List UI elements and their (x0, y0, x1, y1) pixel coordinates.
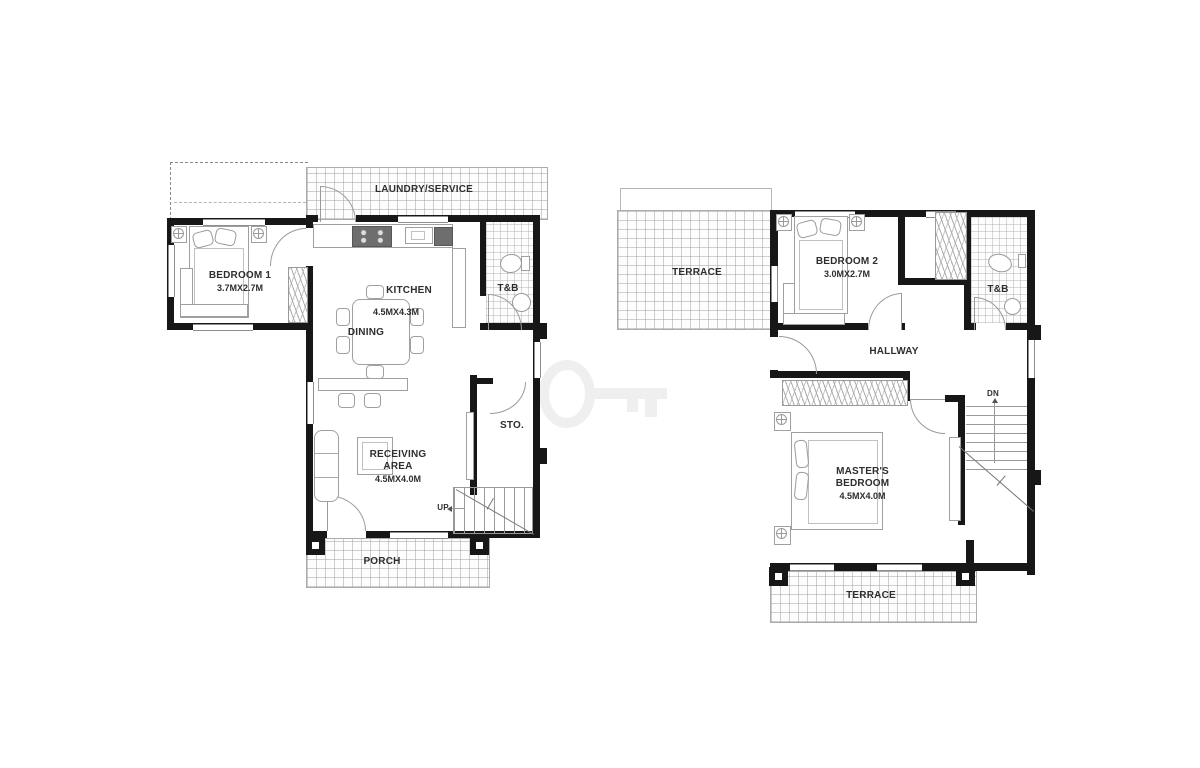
porch-label: PORCH (332, 556, 432, 568)
master-line2: BEDROOM (810, 478, 915, 490)
sink-icon (512, 293, 531, 312)
column (306, 536, 325, 555)
hallway-label: HALLWAY (844, 346, 944, 358)
toilet2-label: T&B (973, 284, 1023, 296)
toilet-tank (521, 256, 530, 271)
column (769, 567, 788, 586)
sofa (314, 430, 339, 502)
door-leaf (910, 399, 945, 400)
master-bedroom-label: MASTER'S BEDROOM 4.5MX4.0M (810, 466, 915, 502)
stove-icon (352, 226, 392, 247)
dining-chair (366, 365, 384, 379)
floor-plan-canvas: LAUNDRY/SERVICE PORCH (0, 0, 1200, 768)
door-arc (910, 399, 945, 434)
wall (770, 330, 778, 337)
door-leaf (488, 294, 489, 330)
wall (1034, 470, 1041, 485)
wall (1034, 325, 1041, 340)
bedroom2-closet (935, 212, 967, 280)
key-watermark-icon (535, 352, 675, 437)
wall (966, 563, 1035, 571)
bedroom2-dims: 3.0MX2.7M (797, 268, 897, 280)
receiving-dims: 4.5MX4.0M (348, 473, 448, 485)
setback-line (170, 162, 171, 220)
kitchen-label: KITCHEN (359, 285, 459, 297)
laundry-label: LAUNDRY/SERVICE (344, 184, 504, 196)
window (390, 532, 448, 539)
window (1028, 340, 1035, 378)
lamp-icon (173, 228, 184, 239)
pillow (819, 217, 842, 236)
master-closet (782, 380, 908, 406)
lamp-icon (778, 216, 789, 227)
dn-arrow-icon (992, 398, 998, 403)
wall (945, 395, 958, 402)
door-leaf (320, 186, 321, 222)
wall (1027, 210, 1035, 575)
column (956, 567, 975, 586)
armchair (364, 393, 381, 408)
dn-label: DN (983, 389, 1003, 398)
lamp-icon (776, 528, 787, 539)
window (193, 324, 253, 331)
wall (540, 323, 547, 339)
door-arc (490, 382, 526, 414)
window (168, 245, 175, 297)
toilet-label: T&B (483, 283, 533, 295)
toilet-tank (1018, 254, 1026, 268)
bedroom2-name: BEDROOM 2 (797, 256, 897, 268)
column (470, 536, 489, 555)
bedroom1-dims: 3.7MX2.7M (180, 282, 300, 294)
door-arc (270, 228, 306, 266)
lamp-icon (253, 228, 264, 239)
roof-line (620, 188, 772, 212)
window (534, 342, 541, 378)
bedroom1-cabinet (180, 304, 248, 317)
master-line1: MASTER'S (810, 466, 915, 478)
stair-handrail (466, 412, 474, 480)
receiving-line1: RECEIVING (348, 449, 448, 461)
sink-icon (1004, 298, 1021, 315)
bedroom1-name: BEDROOM 1 (180, 270, 300, 282)
door-arc (868, 293, 902, 330)
kitchen-sink-basin (411, 231, 425, 240)
window (203, 219, 265, 226)
bedroom2-cabinet (783, 313, 845, 325)
window (771, 266, 778, 302)
door-leaf (901, 293, 902, 330)
bedroom2-label: BEDROOM 2 3.0MX2.7M (797, 256, 897, 280)
refrigerator-icon (434, 227, 453, 246)
wall (306, 215, 318, 222)
storage-label: STO. (487, 420, 537, 432)
up-arrow-line (452, 508, 464, 509)
master-dims: 4.5MX4.0M (810, 490, 915, 502)
setback-line (174, 202, 306, 203)
lamp-icon (776, 414, 787, 425)
terrace-lower-label: TERRACE (821, 590, 921, 602)
dresser (949, 437, 961, 521)
dining-label: DINING (316, 327, 416, 339)
lamp-icon (851, 216, 862, 227)
wall (902, 323, 905, 330)
armchair (338, 393, 355, 408)
window (877, 564, 922, 571)
window (790, 564, 834, 571)
door-arc (779, 336, 817, 374)
kitchen-dims: 4.5MX4.3M (346, 306, 446, 318)
dn-arrow-line (994, 403, 995, 463)
pillow (794, 439, 810, 468)
door-leaf (974, 297, 975, 330)
setback-line (170, 162, 308, 163)
terrace-upper-label: TERRACE (647, 267, 747, 279)
window (307, 382, 314, 424)
wall (898, 210, 905, 285)
console-table (318, 378, 408, 391)
window (398, 216, 448, 223)
receiving-label: RECEIVING AREA 4.5MX4.0M (348, 449, 448, 485)
bedroom1-label: BEDROOM 1 3.7MX2.7M (180, 270, 300, 294)
wall (356, 215, 540, 222)
receiving-line2: AREA (348, 461, 448, 473)
up-label: UP (433, 503, 453, 512)
wall (540, 448, 547, 464)
